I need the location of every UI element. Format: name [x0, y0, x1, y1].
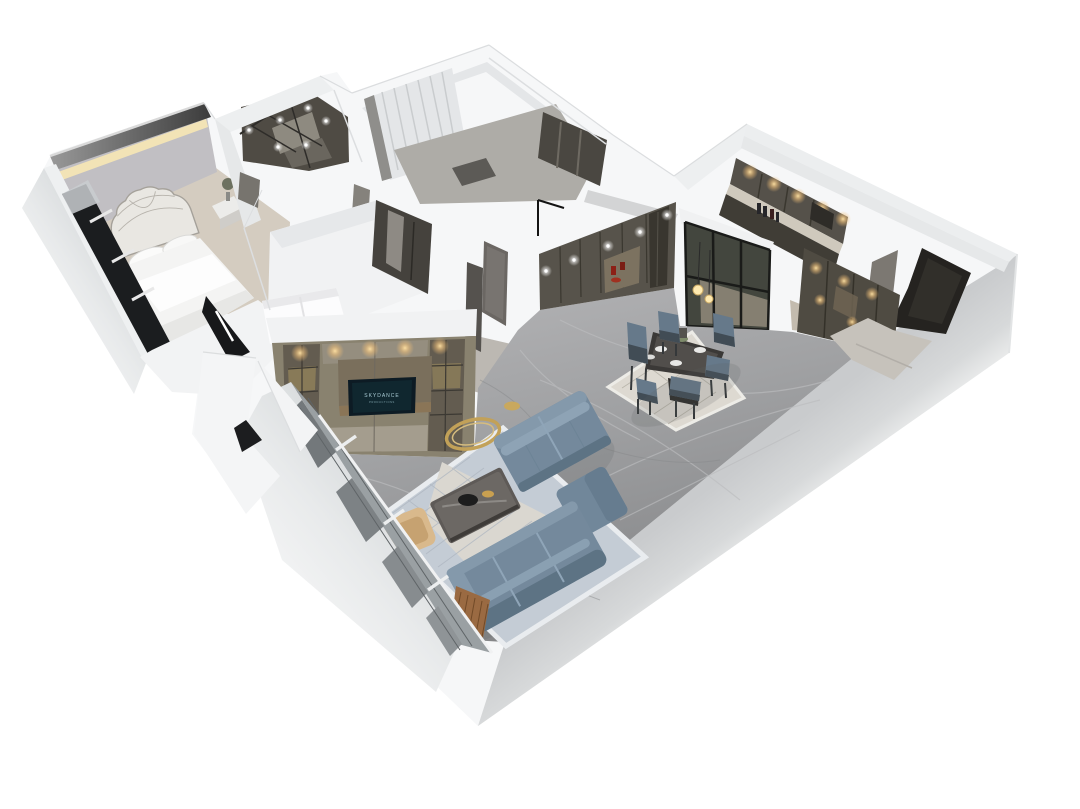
svg-text:SKYDANCE: SKYDANCE [364, 393, 400, 399]
svg-text:PRODUCTIONS: PRODUCTIONS [369, 400, 395, 404]
